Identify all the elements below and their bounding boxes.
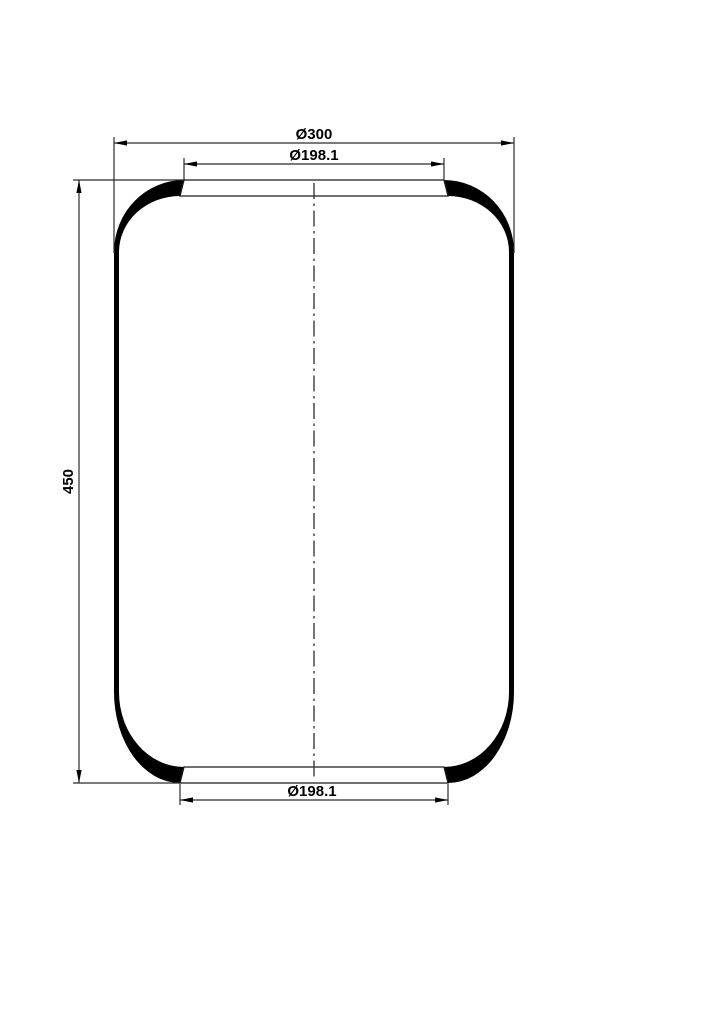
dimension-arrows	[76, 140, 514, 802]
dimension-labels: Ø300 Ø198.1 450 Ø198.1	[60, 126, 339, 800]
arrow-height-bottom	[76, 770, 81, 783]
arrow-bottom-bead-right	[435, 797, 448, 802]
bellows-left-profile	[114, 180, 184, 783]
technical-drawing: Ø300 Ø198.1 450 Ø198.1	[0, 0, 724, 1024]
drawing-page: Ø300 Ø198.1 450 Ø198.1	[0, 0, 724, 1024]
arrow-top-bead-left	[184, 161, 197, 166]
dimension-lines	[73, 137, 514, 805]
bottom-bead-diameter-label: Ø198.1	[287, 783, 336, 800]
arrow-outer-right	[501, 140, 514, 145]
top-bead-diameter-label: Ø198.1	[289, 147, 338, 164]
arrow-outer-left	[114, 140, 127, 145]
arrow-bottom-bead-left	[180, 797, 193, 802]
bellows-right-profile	[444, 180, 514, 783]
height-label: 450	[60, 469, 77, 494]
arrow-height-top	[76, 180, 81, 193]
arrow-top-bead-right	[431, 161, 444, 166]
outer-diameter-label: Ø300	[296, 126, 333, 143]
